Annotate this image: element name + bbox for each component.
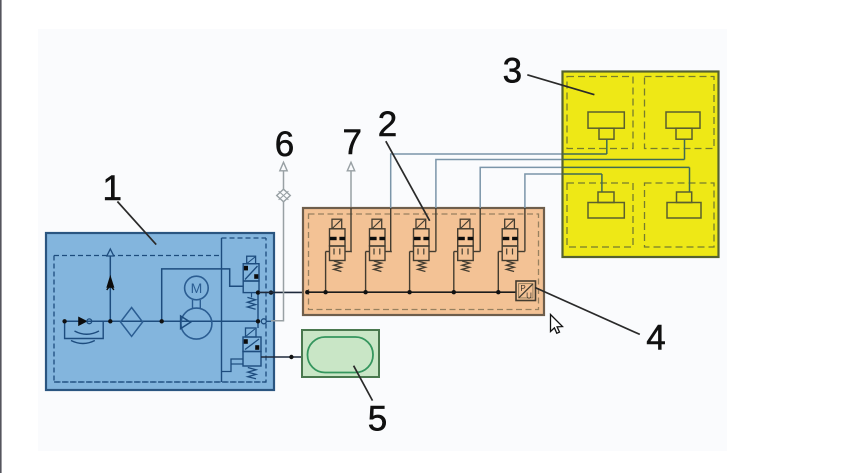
svg-text:5: 5 (368, 399, 387, 438)
svg-text:4: 4 (646, 318, 665, 357)
svg-text:M: M (191, 280, 203, 296)
svg-text:2: 2 (378, 105, 397, 144)
svg-text:P: P (520, 284, 525, 293)
svg-text:U: U (526, 292, 532, 301)
svg-text:6: 6 (275, 125, 294, 164)
svg-text:3: 3 (503, 52, 522, 91)
svg-text:7: 7 (342, 123, 361, 162)
